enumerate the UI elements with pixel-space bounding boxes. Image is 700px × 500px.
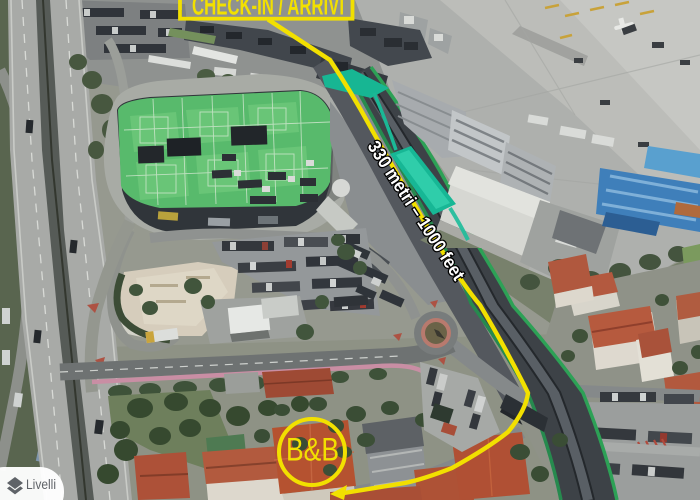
svg-text:Livelli: Livelli xyxy=(26,477,56,492)
svg-text:CHECK-IN / ARRIVI: CHECK-IN / ARRIVI xyxy=(192,0,344,21)
svg-text:B&B: B&B xyxy=(286,432,339,468)
